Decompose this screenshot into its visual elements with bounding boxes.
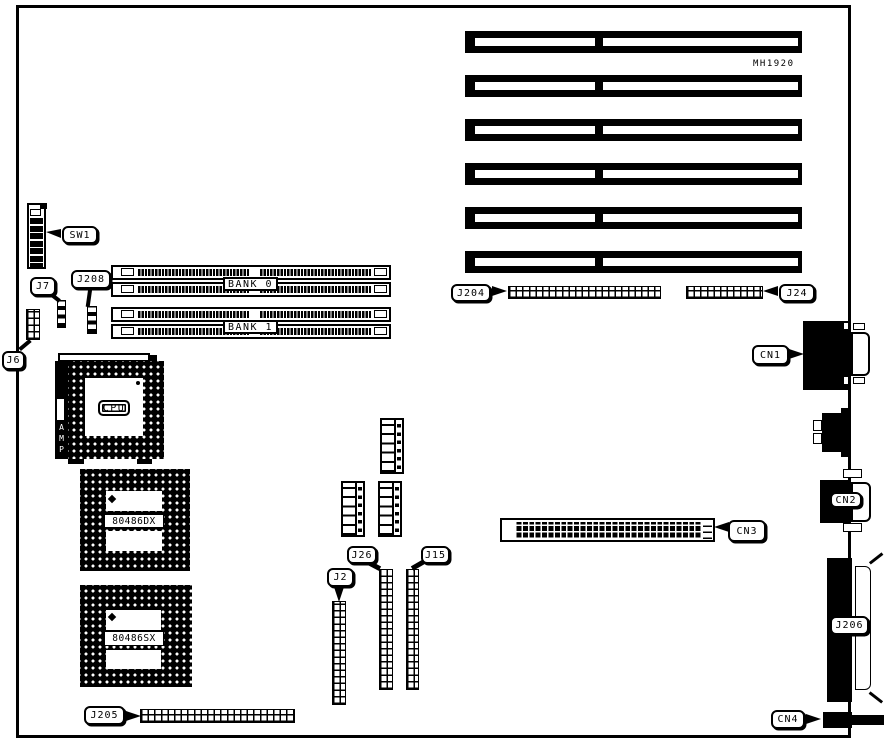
cn1-mount-tab: [853, 377, 865, 384]
cn1-connector: [803, 321, 849, 390]
sw1-slider: [30, 209, 41, 216]
callout-cn4: CN4: [771, 710, 805, 729]
callout-j208: J208: [71, 270, 111, 289]
power-connector: [380, 418, 404, 474]
callout-j15: J15: [421, 546, 450, 564]
cn1-pointer: [789, 349, 804, 359]
callout-j7: J7: [30, 277, 56, 296]
aux-port-edge: [841, 408, 850, 457]
power-connector: [378, 481, 402, 537]
callout-sw1: SW1: [62, 226, 98, 244]
amp-brand-label: AMP: [57, 423, 65, 456]
power-connector: [341, 481, 365, 537]
cn1-mount-tab: [853, 323, 865, 330]
cn1-dsub-outline: [851, 332, 870, 376]
j206-corner-mark: [869, 691, 883, 703]
j15-header: [406, 569, 419, 690]
cpu-pin1-mark: [136, 381, 140, 385]
cpu-socket-foot: [137, 459, 152, 464]
j24-header: [686, 286, 763, 299]
callout-j26: J26: [347, 546, 377, 564]
cpu-socket-side-bar: AMP: [55, 361, 68, 459]
j26-header: [379, 569, 393, 690]
isa-slot-6: [465, 251, 802, 273]
callout-cn3: CN3: [728, 520, 766, 542]
isa-slot-key-long: [603, 38, 798, 46]
port-tab: [813, 420, 822, 431]
callout-j6: J6: [2, 351, 25, 370]
j208-jumper: [87, 306, 97, 334]
cn4-connector: [823, 712, 852, 728]
isa-slot-key-short: [475, 38, 595, 46]
cn4-pointer: [806, 714, 821, 724]
callout-cn2: CN2: [830, 492, 862, 508]
isa-slot-4: [465, 163, 802, 185]
callout-cn1: CN1: [752, 345, 789, 365]
j6-header: [26, 309, 40, 340]
j205-header: [140, 709, 295, 723]
cn2-mount-tab: [843, 523, 862, 532]
isa-slot-3: [465, 119, 802, 141]
bank1-label: BANK 1: [223, 320, 278, 334]
cn4-connector-edge: [852, 715, 884, 725]
j7-jumper: [57, 300, 66, 328]
port-tab: [813, 433, 822, 444]
cpu-label: CPU: [98, 400, 130, 416]
part-number-label: MH1920: [753, 59, 795, 69]
callout-j205: J205: [84, 706, 125, 725]
callout-j2: J2: [327, 568, 354, 587]
sw1-corner-mark: [40, 203, 47, 209]
cpu-socket-foot: [68, 459, 84, 464]
isa-slot-2: [465, 75, 802, 97]
callout-j204: J204: [451, 284, 491, 302]
cn2-mount-tab: [843, 469, 862, 478]
sw1-pointer: [46, 229, 61, 238]
j2-header: [332, 601, 346, 705]
j2-pointer: [334, 587, 344, 602]
isa-slot-1: [465, 31, 802, 53]
bank0-label: BANK 0: [223, 277, 278, 291]
callout-j206: J206: [830, 616, 869, 635]
isa-slot-5: [465, 207, 802, 229]
80486dx-label: 80486DX: [104, 514, 164, 528]
cn3-connector: [500, 518, 715, 542]
callout-j24: J24: [779, 284, 815, 302]
cn3-pointer: [714, 522, 729, 532]
motherboard-diagram: MH1920 J204 J24 SW1 J7 J208 J6: [0, 0, 886, 741]
80486sx-label: 80486SX: [104, 631, 164, 646]
j205-pointer: [126, 711, 141, 721]
j204-pointer: [492, 286, 507, 296]
j204-header: [508, 286, 661, 299]
j24-pointer: [763, 286, 778, 296]
sw1-dip-switch: [27, 203, 46, 269]
j206-corner-mark: [869, 552, 883, 564]
